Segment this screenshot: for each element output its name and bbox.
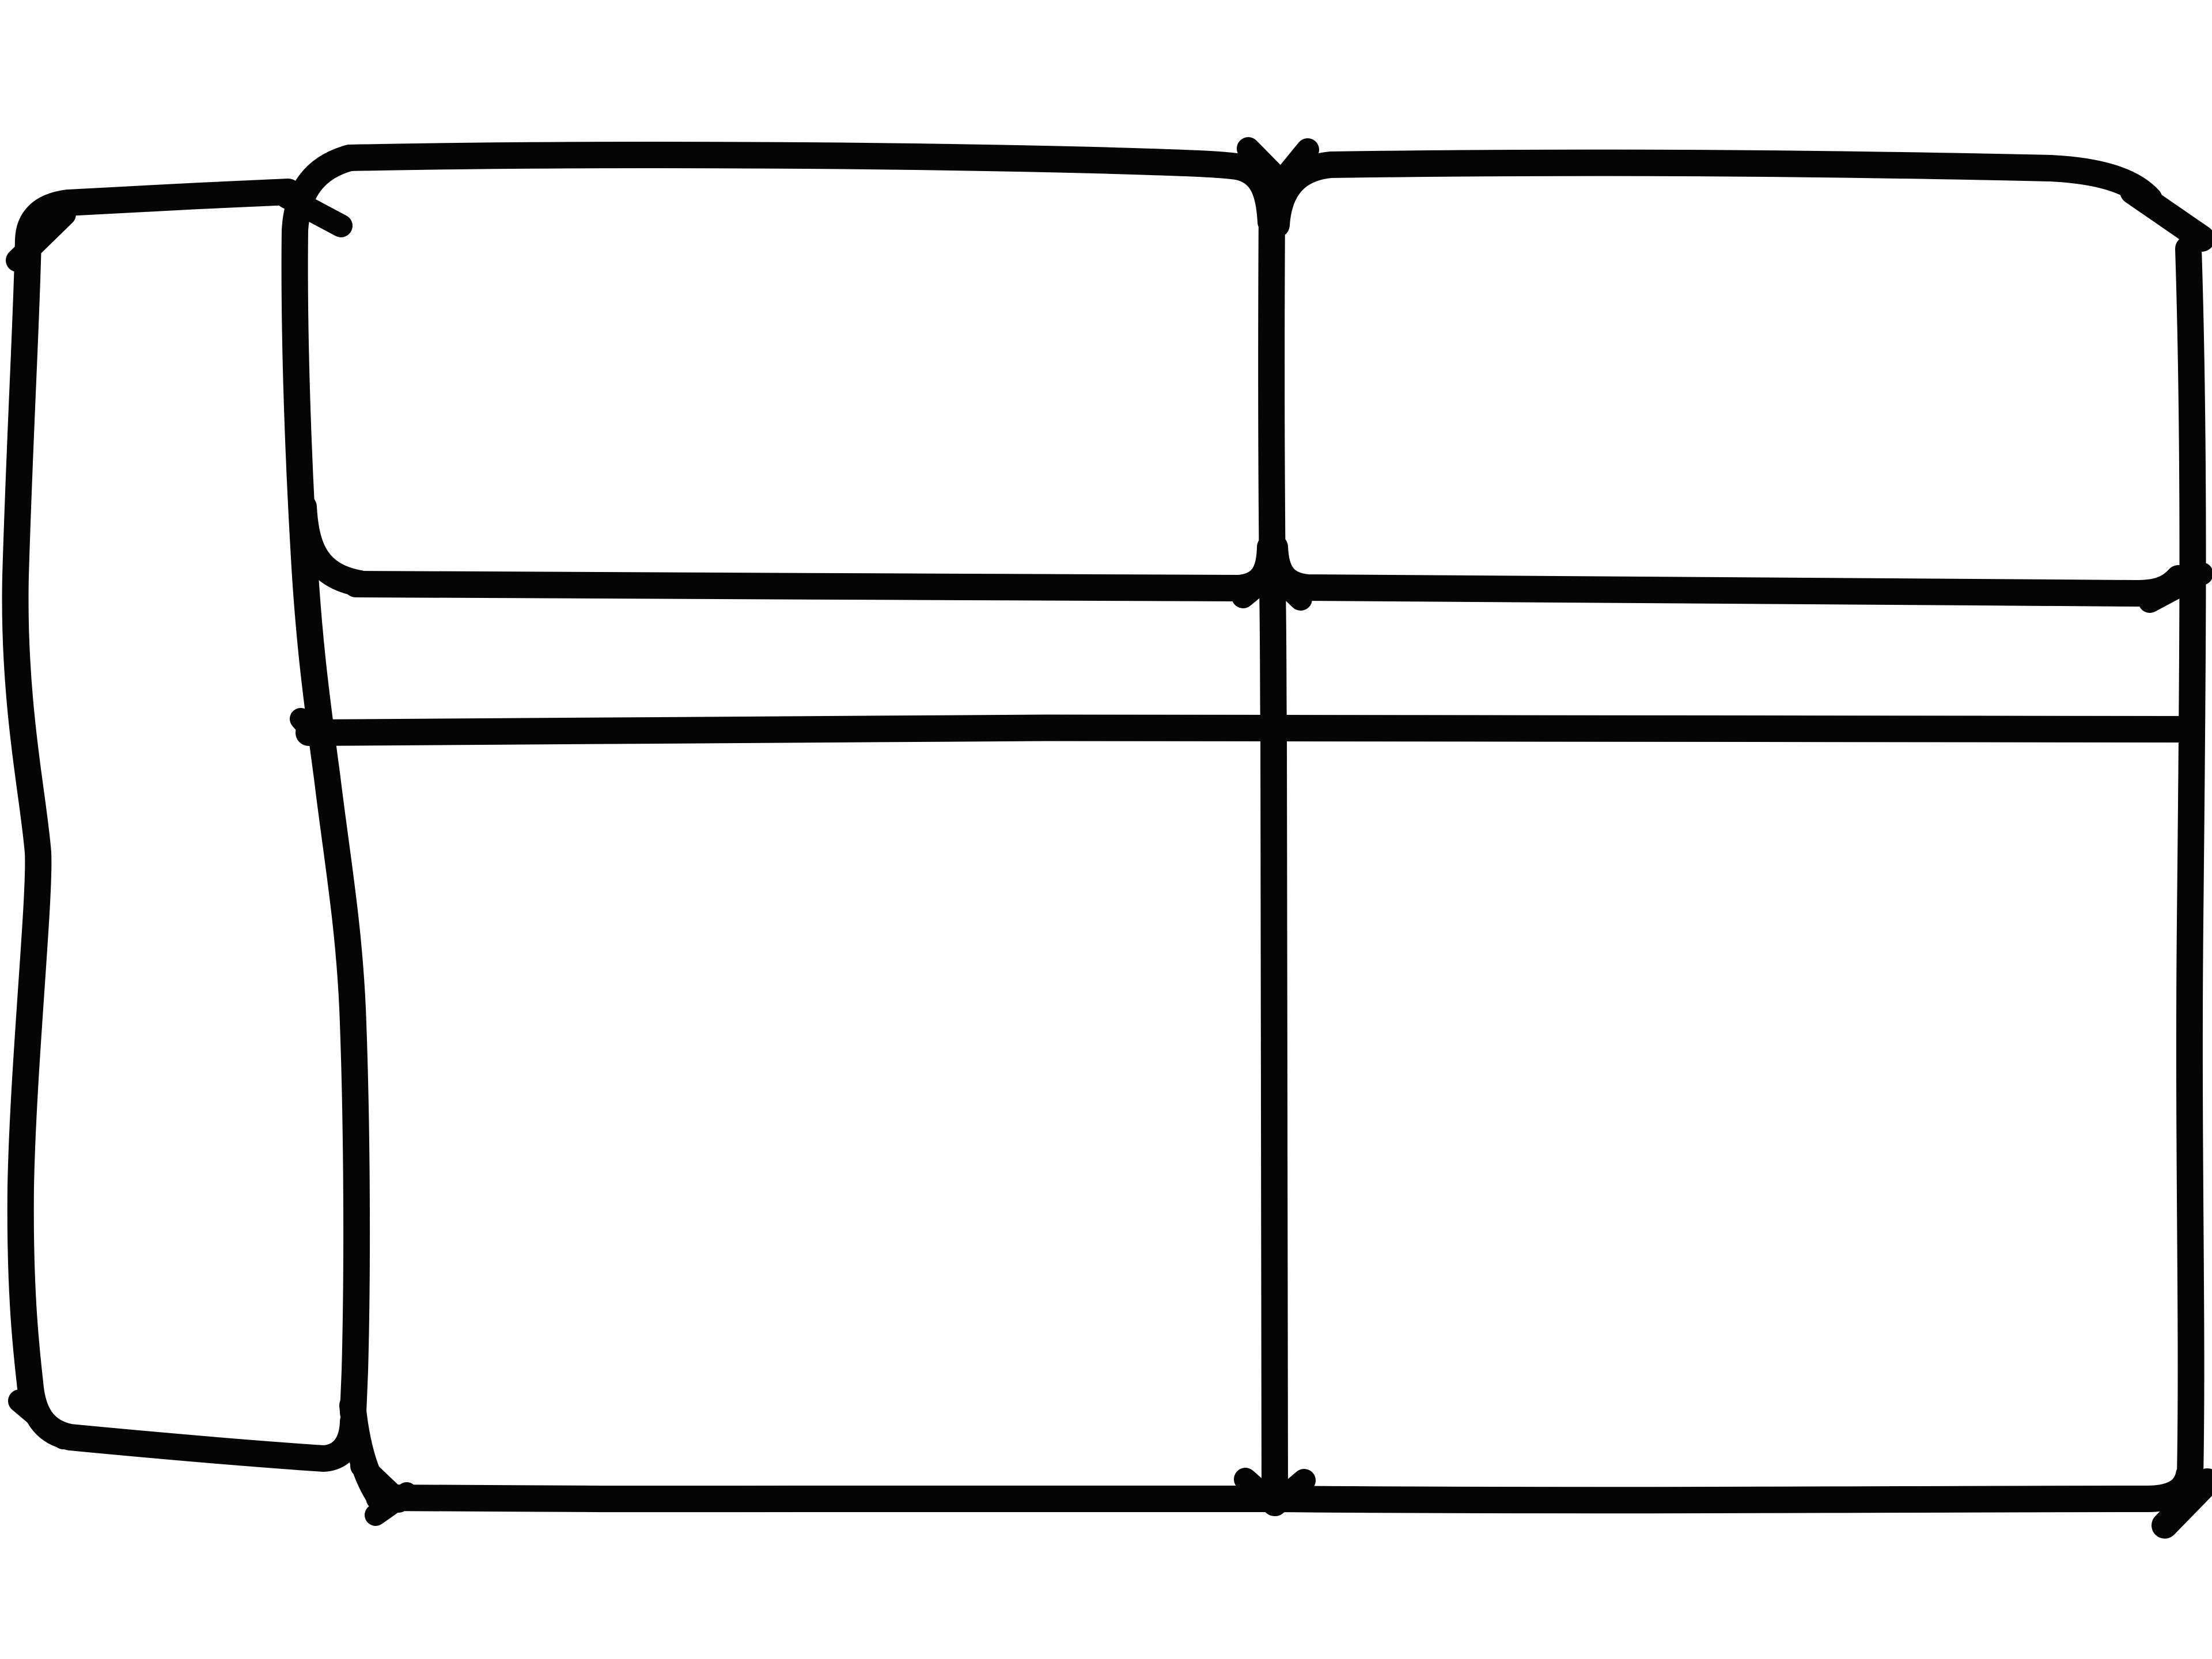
cushion2-top-right-corner-nub bbox=[2133, 191, 2202, 238]
cushion2-top-edge bbox=[1277, 163, 2149, 225]
sofa-svg bbox=[0, 0, 2212, 1659]
sofa-line-drawing bbox=[0, 0, 2212, 1659]
cushion1-bottom-edge bbox=[356, 547, 1270, 588]
cushion1-top-edge bbox=[350, 155, 1271, 222]
seat-divider-line bbox=[309, 728, 2186, 733]
center-divider-vertical bbox=[1271, 207, 1275, 1493]
sofa-right-edge bbox=[2188, 249, 2193, 1476]
cushion-left-vertical-edge bbox=[295, 158, 357, 1412]
cushion2-bottom-edge bbox=[1275, 547, 2179, 593]
armrest-bottom-left-corner-nub bbox=[20, 1401, 63, 1438]
